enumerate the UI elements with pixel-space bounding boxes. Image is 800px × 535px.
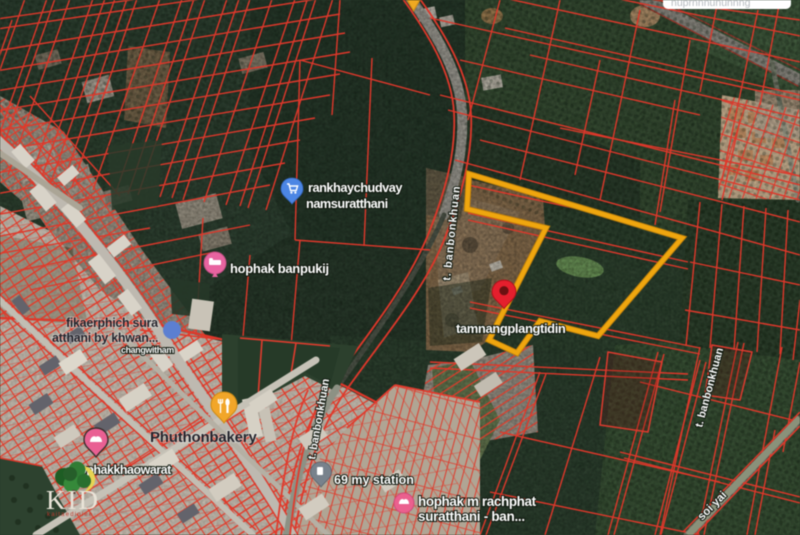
svg-text:tamnangplangtidin: tamnangplangtidin (456, 321, 566, 336)
svg-text:changwitham: changwitham (121, 345, 174, 355)
svg-text:69 my station: 69 my station (334, 473, 414, 487)
svg-text:namsuratthani: namsuratthani (306, 196, 388, 211)
svg-text:suratthani - ban...: suratthani - ban... (418, 509, 525, 524)
svg-text:KID: KID (46, 485, 100, 515)
svg-text:kaitaedinlee: kaitaedinlee (47, 512, 93, 518)
svg-text:atthani by khwan...: atthani by khwan... (52, 331, 158, 345)
svg-text:hophak banpukij: hophak banpukij (230, 261, 329, 276)
svg-text:Phuthonbakery: Phuthonbakery (150, 429, 257, 446)
svg-text:rankhaychudvay: rankhaychudvay (308, 180, 403, 195)
svg-text:nuprnnnununnng: nuprnnnununnng (671, 0, 751, 9)
svg-text:hophak m rachphat: hophak m rachphat (418, 494, 537, 509)
svg-text:fikaerphich sura: fikaerphich sura (66, 316, 159, 330)
